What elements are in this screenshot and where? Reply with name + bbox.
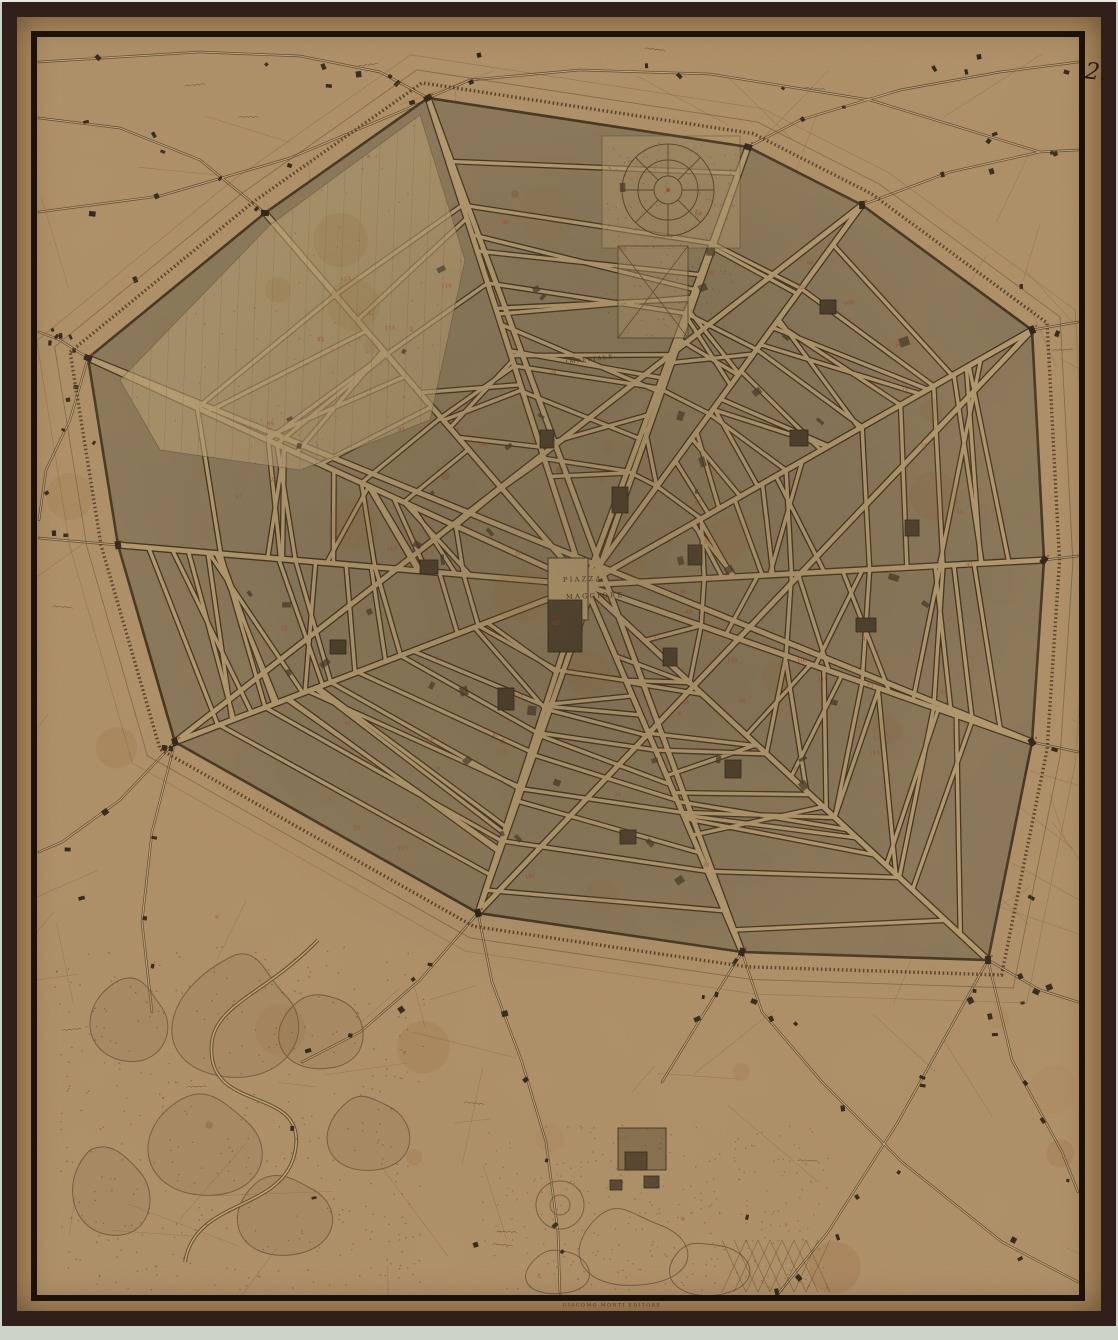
map-sheet: 2083958311833104382616933433311461031001… bbox=[2, 2, 1116, 1326]
scan-edge-top bbox=[0, 0, 1118, 2]
folio-number: 2. bbox=[1084, 58, 1117, 87]
publisher-imprint: GIACOMO MONTI EDITORE bbox=[544, 1302, 680, 1308]
map-canvas: 2083958311833104382616933433311461031001… bbox=[37, 37, 1079, 1295]
scan-edge-bottom bbox=[0, 1327, 1118, 1340]
